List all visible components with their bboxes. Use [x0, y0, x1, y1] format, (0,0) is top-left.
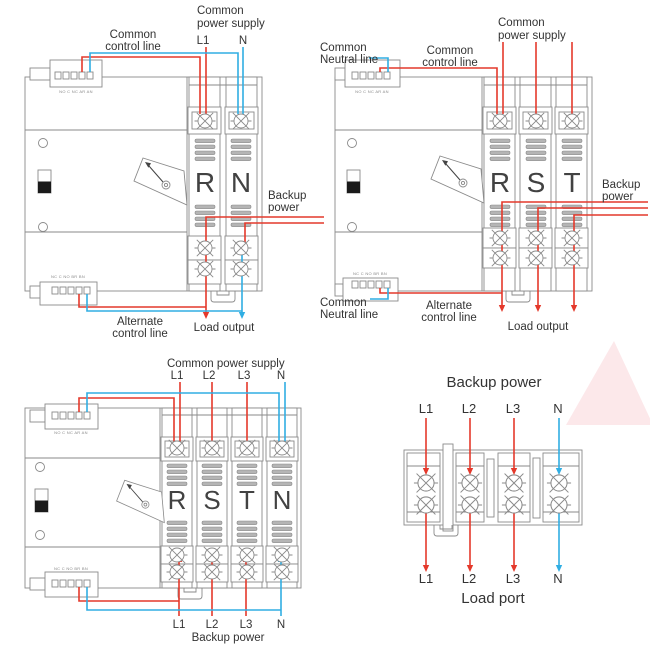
din-clip — [178, 588, 202, 599]
svg-text:power: power — [268, 202, 299, 214]
alternate-neutral-wire — [87, 294, 242, 311]
output-terminal-label: N — [553, 571, 562, 586]
svg-text:control line: control line — [421, 312, 477, 324]
pole-letter: T — [563, 167, 580, 198]
output-terminal-label: L1 — [173, 619, 186, 631]
connector-pins — [52, 287, 90, 294]
diagram-canvas: NO C NC AR AN NC C NO BR BN — [0, 0, 650, 650]
input-terminal-label: L1 — [419, 401, 433, 416]
output-terminal-label: N — [277, 619, 285, 631]
connector-pins — [52, 412, 90, 419]
output-terminal-label: L2 — [206, 619, 219, 631]
pole-letter: N — [231, 167, 251, 198]
l1-terminal-label: L1 — [197, 35, 210, 47]
arrow-down-icon — [239, 312, 245, 319]
pole-letter: N — [273, 485, 292, 515]
svg-text:control line: control line — [112, 328, 168, 340]
toggle-switch — [35, 489, 48, 512]
input-terminal-label: L3 — [506, 401, 520, 416]
divider-tab — [533, 458, 540, 518]
svg-text:Neutral line: Neutral line — [320, 54, 378, 66]
common-control-label: Common — [110, 29, 157, 41]
svg-text:power: power — [602, 191, 633, 203]
wiring-diagram-sheet: NO C NC AR AN NC C NO BR BN — [0, 0, 650, 650]
arrow-down-icon — [535, 305, 541, 312]
common-power-supply-label: Common — [197, 5, 244, 17]
divider-tab — [487, 459, 494, 517]
load-output-label: Load output — [508, 321, 570, 333]
connector-top-text: NO C NC AR AN — [54, 430, 88, 435]
svg-text:power supply: power supply — [498, 30, 566, 42]
svg-text:control line: control line — [105, 41, 161, 53]
connector-pins — [352, 281, 390, 288]
arrow-down-icon — [203, 312, 209, 319]
alternate-control-wire — [79, 294, 206, 307]
load-output-label: Load output — [194, 322, 256, 334]
din-clip — [211, 291, 235, 302]
input-terminal-label: L3 — [238, 370, 251, 382]
connector-pins — [52, 580, 90, 587]
backup-power-label: Backup — [268, 190, 306, 202]
arrow-down-icon — [499, 305, 505, 312]
connector-pins — [55, 72, 93, 79]
connector-top-text: NO C NC AR AN — [355, 89, 389, 94]
toggle-switch — [38, 170, 51, 193]
alternate-control-label: Alternate — [426, 300, 472, 312]
output-terminal-label: L3 — [240, 619, 253, 631]
arrow-down-icon — [571, 305, 577, 312]
common-power-supply-label: Common power supply — [167, 358, 285, 370]
input-terminal-label: N — [277, 370, 285, 382]
pole-letter: S — [527, 167, 546, 198]
svg-text:power supply: power supply — [197, 18, 265, 30]
divider-tab — [443, 444, 453, 531]
ats-4p-diagram: NO C NC AR AN NC C NO BR BN — [25, 358, 301, 644]
alternate-control-label: Alternate — [117, 316, 163, 328]
pole-letter: R — [490, 167, 510, 198]
backup-power-label: Backup power — [192, 632, 265, 644]
output-terminal-label: L1 — [419, 571, 433, 586]
backup-power-label: Backup — [602, 179, 640, 191]
input-terminal-label: L2 — [203, 370, 216, 382]
pole-letter: S — [203, 485, 220, 515]
backup-power-title: Backup power — [446, 374, 541, 391]
connector-bottom-text: NC C NO BR BN — [353, 271, 387, 276]
pole-letter: R — [168, 485, 187, 515]
common-power-supply-label: Common — [498, 17, 545, 29]
output-terminal-label: L3 — [506, 571, 520, 586]
ats-3p-diagram: NO C NC AR AN NC C NO BR BN — [320, 17, 648, 333]
connector-bottom-text: NC C NO BR BN — [51, 274, 85, 279]
output-terminal-label: L2 — [462, 571, 476, 586]
svg-text:Neutral line: Neutral line — [320, 309, 378, 321]
toggle-switch — [347, 170, 360, 193]
input-terminal-label: L1 — [171, 370, 184, 382]
input-terminal-label: L2 — [462, 401, 476, 416]
common-neutral-bottom-label: Common — [320, 297, 367, 309]
common-neutral-top-label: Common — [320, 42, 367, 54]
load-port-label: Load port — [461, 590, 525, 607]
watermark-triangle — [566, 341, 650, 425]
input-terminal-label: N — [553, 401, 562, 416]
connector-top-text: NO C NC AR AN — [59, 89, 93, 94]
ats-2p-diagram: NO C NC AR AN NC C NO BR BN — [25, 5, 324, 340]
din-clip — [506, 291, 530, 302]
common-control-label: Common — [427, 45, 474, 57]
backup-terminal-diagram: Backup power L1 L2 L3 N — [404, 374, 582, 607]
pole-letter: T — [239, 485, 255, 515]
svg-text:control line: control line — [422, 57, 478, 69]
connector-pins — [352, 72, 390, 79]
pole-letter: R — [195, 167, 215, 198]
n-terminal-label: N — [239, 35, 247, 47]
connector-bottom-text: NC C NO BR BN — [54, 566, 88, 571]
